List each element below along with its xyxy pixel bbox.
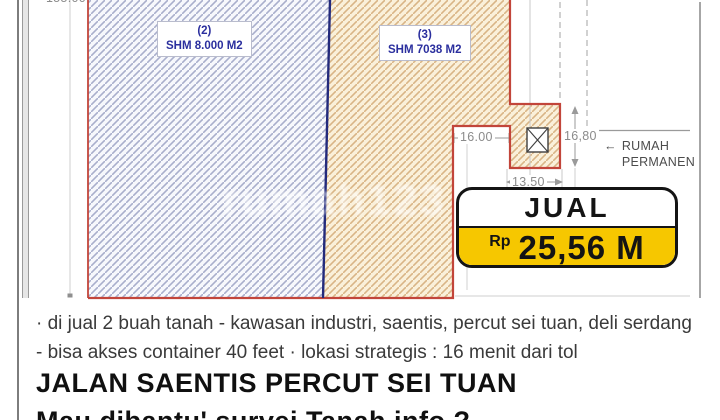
- listing-title: JALAN SAENTIS PERCUT SEI TUAN: [36, 368, 517, 399]
- sheet-left-rule: [17, 0, 19, 420]
- listing-subtitle-cropped: Mau dibantu' survei Tanah info ?: [36, 406, 470, 420]
- badge-amount: 25,56 M: [519, 229, 645, 267]
- neighbor-annotation: ← RUMAH PERMANEN: [604, 139, 708, 170]
- parcel-3-area: SHM 7038 M2: [388, 43, 462, 58]
- parcel-2-id: (2): [166, 24, 243, 39]
- badge-price: Rp 25,56 M: [459, 226, 675, 267]
- parcel-2-area: SHM 8.000 M2: [166, 39, 243, 54]
- dimension-label-left-height: 155.00: [44, 0, 88, 5]
- plan-left-double-rule: [22, 0, 29, 298]
- parcel-3-id: (3): [388, 28, 462, 43]
- arrow-left-icon: ←: [604, 139, 617, 170]
- left-dimension-end-tick: [68, 294, 73, 298]
- neighbor-label: RUMAH PERMANEN: [622, 139, 708, 170]
- listing-flyer: rumah123 155.00 (2) SHM 8.000 M2 (3) SHM…: [0, 0, 720, 420]
- dimension-label-annex-height: 16,80: [562, 129, 599, 143]
- parcel-2-label: (2) SHM 8.000 M2: [157, 21, 252, 57]
- building-marker-icon: [527, 128, 548, 152]
- parcel-3-label: (3) SHM 7038 M2: [379, 25, 471, 61]
- badge-currency: Rp: [489, 233, 510, 251]
- badge-action: JUAL: [459, 190, 675, 226]
- listing-description: · di jual 2 buah tanah - kawasan industr…: [36, 310, 694, 368]
- dimension-label-notch-width: 16.00: [458, 130, 495, 144]
- price-badge: JUAL Rp 25,56 M: [456, 187, 678, 268]
